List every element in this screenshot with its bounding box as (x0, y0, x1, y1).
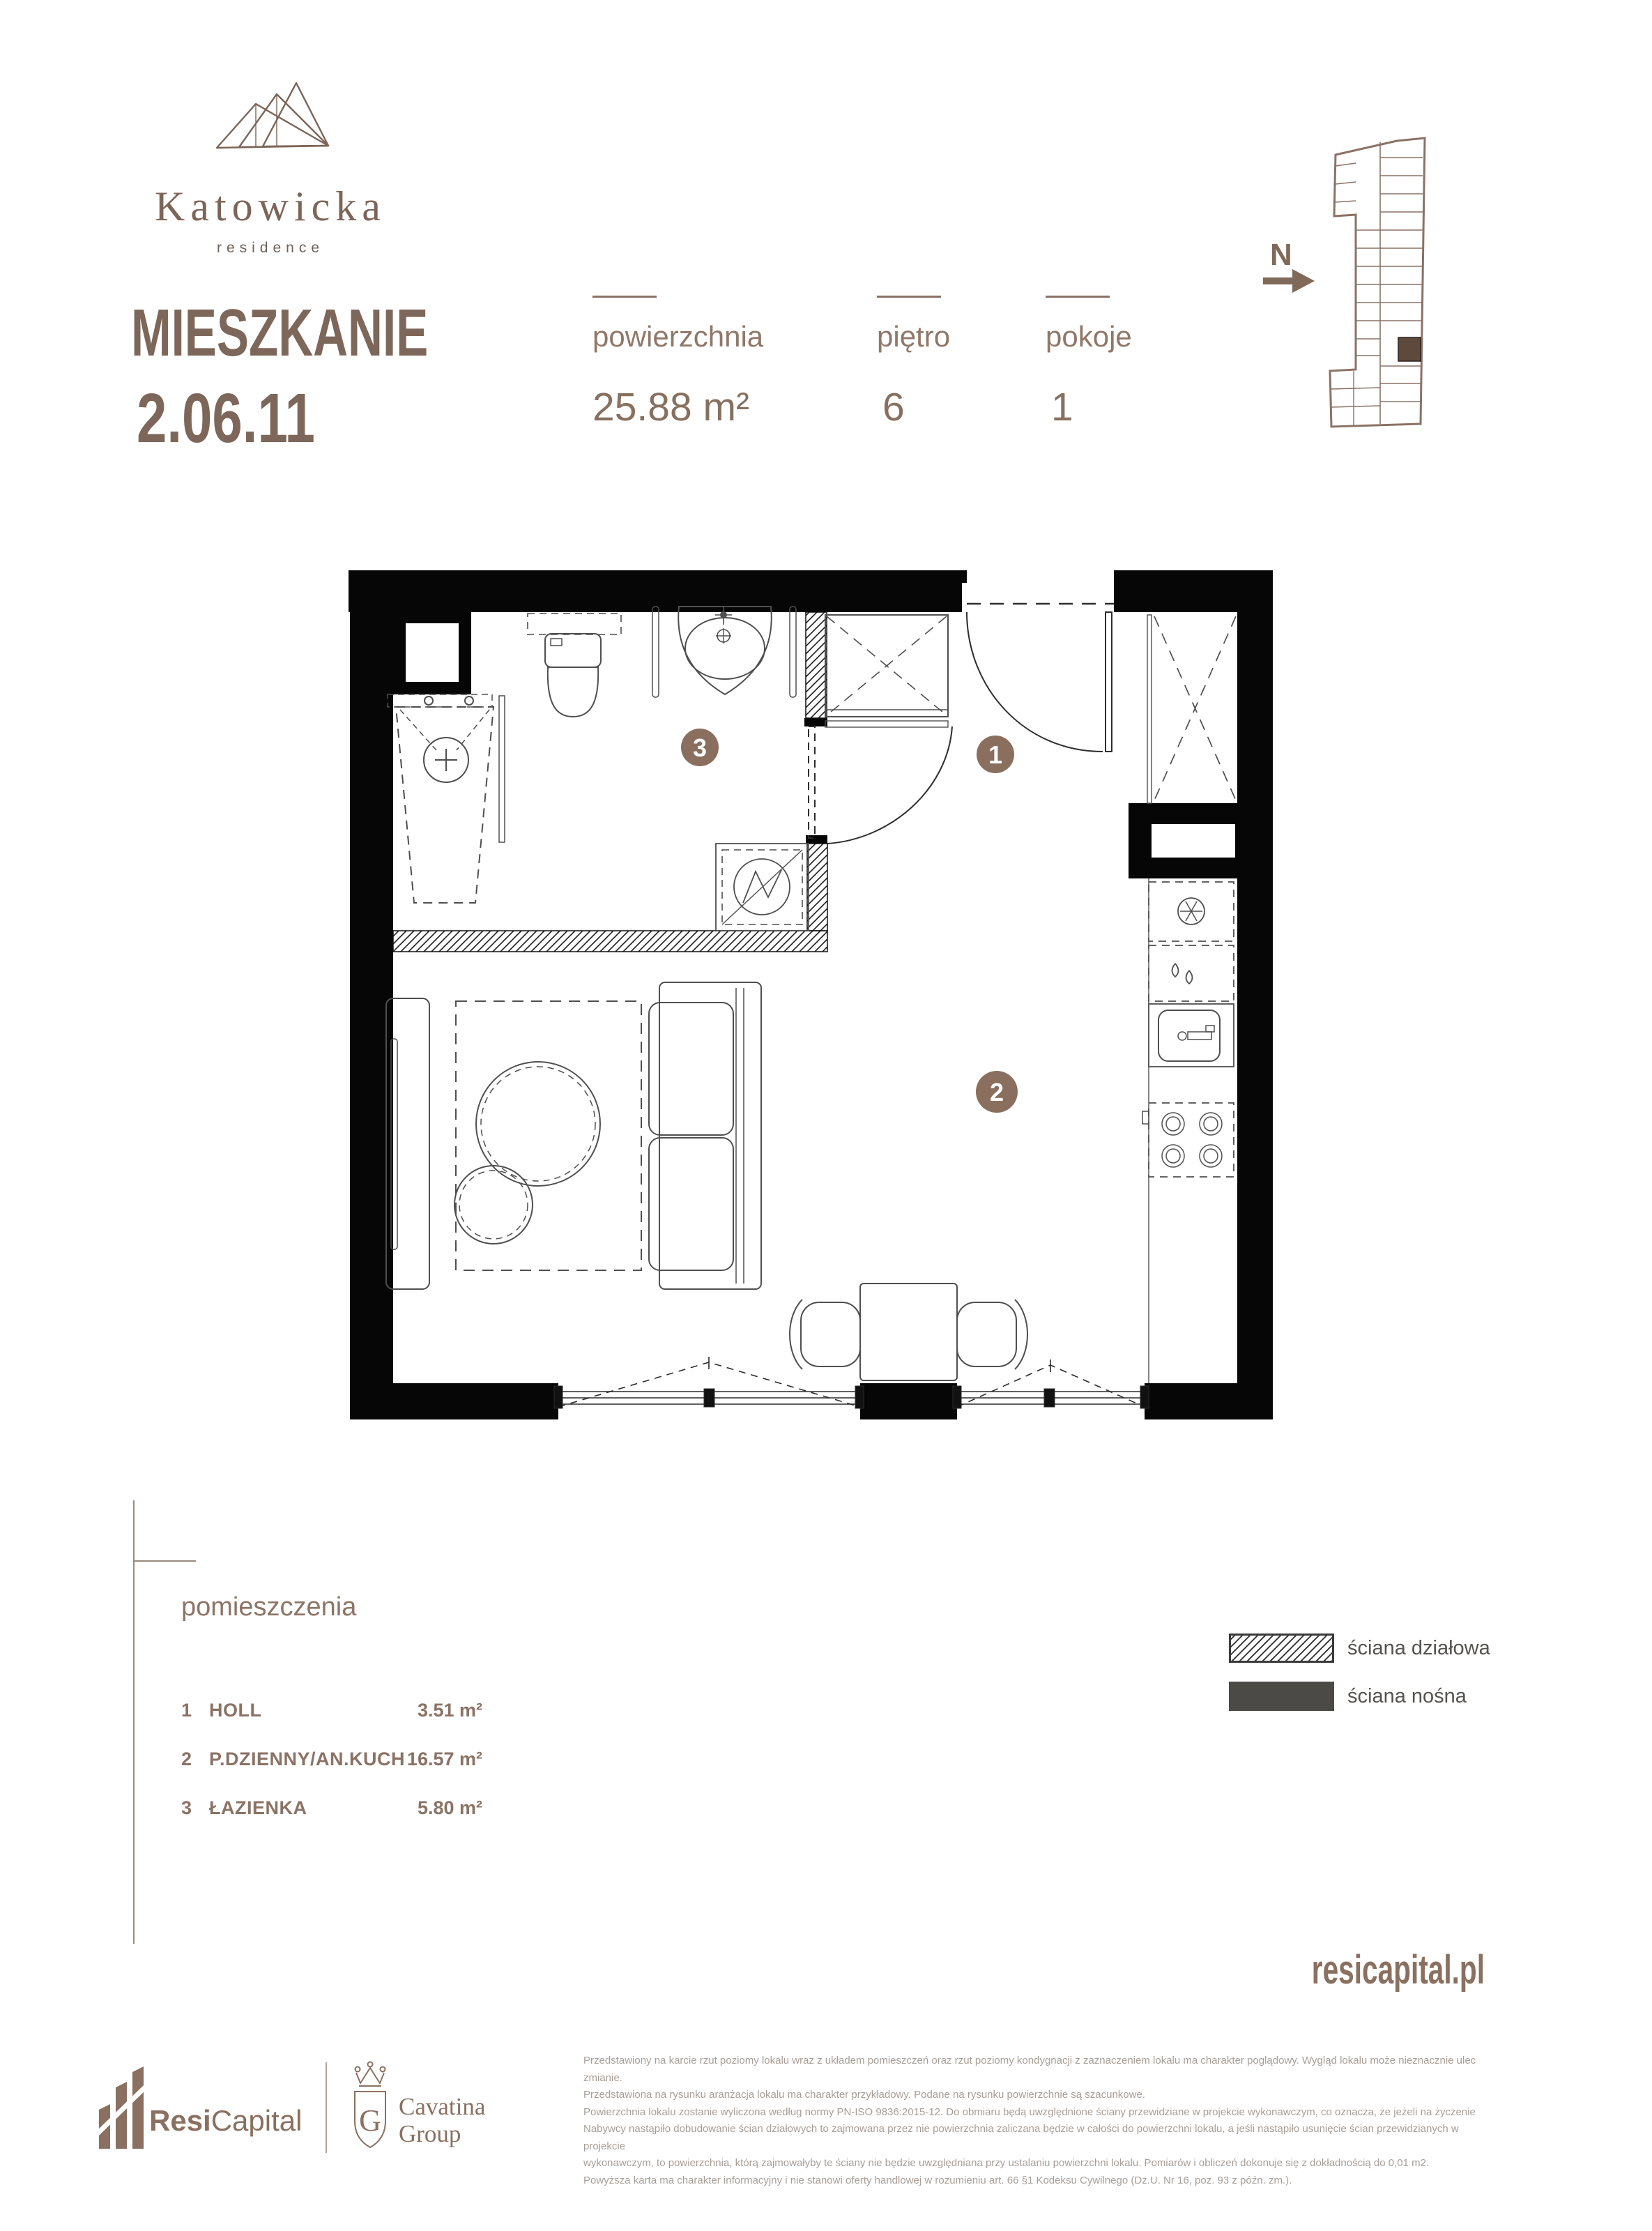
cavatina-line2: Group (399, 2120, 485, 2147)
room-area: 5.80 m² (418, 1797, 482, 1819)
kitchen-sink (1149, 1004, 1234, 1067)
stat-label: powierzchnia (592, 320, 763, 353)
apartment-card-page: { "brand": { "name": "Katowicka", "subti… (0, 0, 1652, 2231)
toilet (528, 614, 621, 717)
dishwasher (1149, 945, 1234, 1001)
stat-rule (592, 296, 657, 298)
partition-wall-swatch (1229, 1634, 1334, 1663)
towel-rail (790, 607, 796, 697)
stat-label: piętro (877, 320, 950, 353)
rooms-list: 1 HOLL 3.51 m² 2 P.DZIENNY/AN.KUCH 16.57… (181, 1700, 482, 1846)
shower (388, 694, 505, 903)
entrance-door (967, 604, 1114, 752)
brand-subtitle: residence (124, 240, 417, 257)
room-badge-living: 2 (976, 1071, 1018, 1113)
hall-closet (1147, 615, 1236, 803)
room-row: 2 P.DZIENNY/AN.KUCH 16.57 m² (181, 1749, 482, 1797)
kitchen-shaft (1152, 824, 1235, 858)
disclaimer-line: Powyższa karta ma charakter informacyjny… (583, 2172, 1490, 2190)
shower-glass (499, 696, 505, 842)
stat-rule (877, 296, 941, 298)
svg-text:1: 1 (988, 740, 1002, 769)
stat-label: pokoje (1046, 320, 1132, 353)
room-id: 3 (181, 1797, 209, 1819)
cavatina-crest-icon: G (350, 2061, 390, 2156)
unit-number: 2.06.11 (137, 383, 315, 453)
resi-bold: Resi (149, 2104, 211, 2137)
dining-set (790, 1284, 1027, 1380)
room-name: ŁAZIENKA (209, 1797, 418, 1819)
sofa (649, 982, 761, 1289)
disclaimer-line: Przedstawiona na rysunku aranżacja lokal… (583, 2087, 1490, 2104)
stat-pietro: piętro 6 (877, 296, 950, 430)
room-badge-bathroom: 3 (681, 729, 719, 766)
cavatina-line1: Cavatina (399, 2093, 485, 2120)
svg-text:3: 3 (693, 733, 707, 762)
bathroom-sink (652, 607, 796, 697)
rug (456, 1001, 641, 1270)
stove (1142, 1103, 1234, 1177)
cavatina-initial: G (359, 2103, 381, 2138)
room-row: 1 HOLL 3.51 m² (181, 1700, 482, 1749)
brand-name: Katowicka (124, 183, 417, 231)
fridge (1149, 882, 1234, 941)
window (554, 1357, 864, 1408)
stat-powierzchnia: powierzchnia 25.88 m² (592, 296, 763, 430)
rooms-heading: pomieszczenia (181, 1592, 356, 1622)
door-jamb (962, 583, 967, 612)
room-badge-hall: 1 (977, 736, 1014, 773)
resicapital-logo-icon (99, 2066, 144, 2149)
room-area: 3.51 m² (418, 1700, 482, 1721)
room-area: 16.57 m² (407, 1749, 482, 1770)
room-row: 3 ŁAZIENKA 5.80 m² (181, 1797, 482, 1846)
coffee-tables (454, 1062, 600, 1244)
disclaimer-line: wykonawczym, to powierzchnia, którą zajm… (583, 2155, 1490, 2172)
cistern (528, 614, 621, 634)
disclaimer: Przedstawiony na karcie rzut poziomy lok… (583, 2053, 1490, 2189)
stat-value: 6 (882, 384, 950, 430)
disclaimer-line: Przedstawiony na karcie rzut poziomy lok… (583, 2053, 1490, 2087)
resicapital-wordmark: ResiCapital (149, 2104, 302, 2138)
website-link[interactable]: resicapital.pl (1280, 1947, 1485, 1993)
door-jamb (1109, 583, 1114, 612)
rooms-rule-tick (133, 1560, 196, 1562)
stat-value: 25.88 m² (592, 384, 763, 430)
bathroom-shaft (406, 623, 459, 682)
page-title: MIESZKANIE (131, 300, 428, 367)
room-name: HOLL (209, 1700, 418, 1721)
room-id: 2 (181, 1749, 209, 1770)
partition-wall-label: ściana działowa (1347, 1637, 1490, 1660)
stat-value: 1 (1051, 384, 1132, 430)
stat-pokoje: pokoje 1 (1046, 296, 1132, 430)
room-id: 1 (181, 1700, 209, 1721)
disclaimer-line: Powierzchnia lokalu zostanie wyliczona w… (583, 2104, 1490, 2122)
north-label: N (1270, 238, 1292, 272)
highlighted-unit-marker (1398, 337, 1421, 361)
load-bearing-wall-swatch (1229, 1682, 1334, 1711)
towel-rail (652, 607, 659, 697)
hall-wardrobe (825, 615, 948, 727)
stat-rule (1046, 296, 1110, 298)
room-name: P.DZIENNY/AN.KUCH (209, 1749, 407, 1770)
resi-light: Capital (211, 2104, 303, 2137)
building-minimap: N (1248, 56, 1596, 446)
footer-divider (326, 2062, 327, 2153)
disclaimer-line: Nabywcy nastąpiło dobudowanie ścian dzia… (583, 2121, 1490, 2155)
north-arrow-icon: N (1263, 238, 1315, 293)
load-bearing-wall-label: ściana nośna (1347, 1685, 1467, 1708)
mountain-logo-icon (213, 80, 331, 151)
washing-machine (716, 844, 809, 931)
svg-text:2: 2 (990, 1078, 1004, 1106)
cavatina-wordmark: Cavatina Group (399, 2093, 485, 2147)
bathroom-door (809, 726, 952, 844)
floor-plan: 1 2 3 (342, 551, 1279, 1422)
rooms-rule-vertical (133, 1500, 135, 1944)
